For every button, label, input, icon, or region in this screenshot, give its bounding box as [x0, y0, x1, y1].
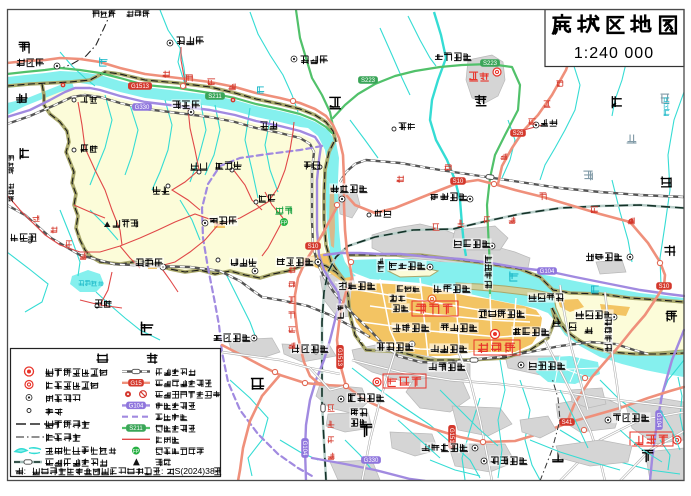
svg-text::: : — [24, 466, 26, 476]
svg-text:G1513: G1513 — [336, 348, 342, 367]
svg-text:G104: G104 — [129, 404, 144, 410]
svg-text:G1513: G1513 — [131, 84, 150, 90]
svg-text:S10: S10 — [308, 244, 319, 250]
svg-text:S211: S211 — [129, 426, 143, 432]
svg-text:S10: S10 — [453, 179, 464, 185]
svg-text:G330: G330 — [135, 105, 150, 111]
svg-text:S211: S211 — [208, 94, 222, 100]
svg-text:S223: S223 — [361, 78, 376, 84]
svg-text:S223: S223 — [483, 61, 498, 67]
svg-text::: : — [161, 466, 163, 476]
svg-text:G15: G15 — [130, 381, 142, 387]
svg-text:1:240 000: 1:240 000 — [574, 45, 654, 62]
svg-text:G104: G104 — [301, 441, 307, 456]
svg-text:G104: G104 — [540, 269, 555, 275]
svg-text:S41: S41 — [562, 420, 573, 426]
svg-text:S(2024)38: S(2024)38 — [175, 466, 215, 476]
svg-text:G104: G104 — [655, 413, 661, 428]
svg-text:FP: FP — [281, 221, 288, 227]
svg-text:FP: FP — [133, 449, 140, 455]
svg-text:S26: S26 — [513, 131, 524, 137]
svg-text:S10: S10 — [659, 284, 670, 290]
svg-text:G330: G330 — [364, 458, 379, 464]
